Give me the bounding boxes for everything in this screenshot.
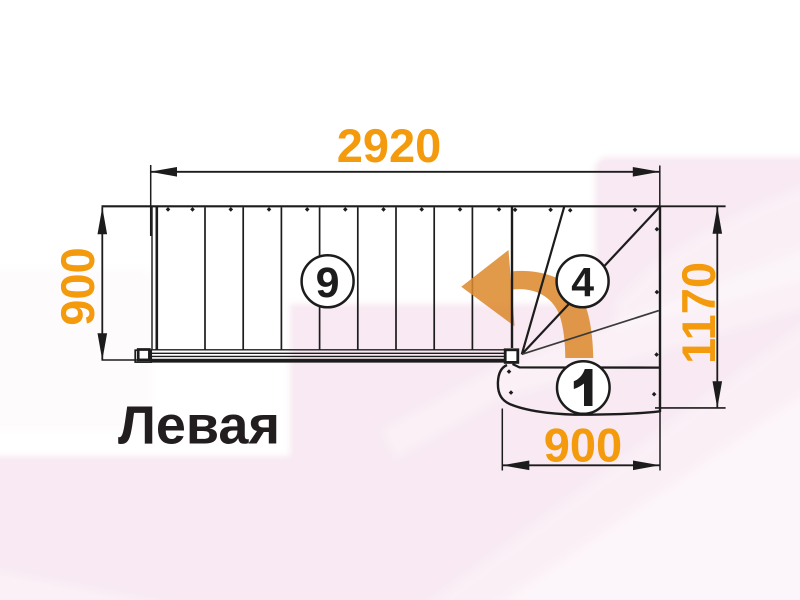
svg-text:Левая: Левая [118,396,280,456]
svg-text:2920: 2920 [337,119,442,172]
svg-text:9: 9 [316,259,340,307]
svg-text:1170: 1170 [672,262,725,364]
svg-text:4: 4 [571,259,594,305]
svg-text:900: 900 [51,247,104,325]
svg-text:900: 900 [544,419,622,472]
